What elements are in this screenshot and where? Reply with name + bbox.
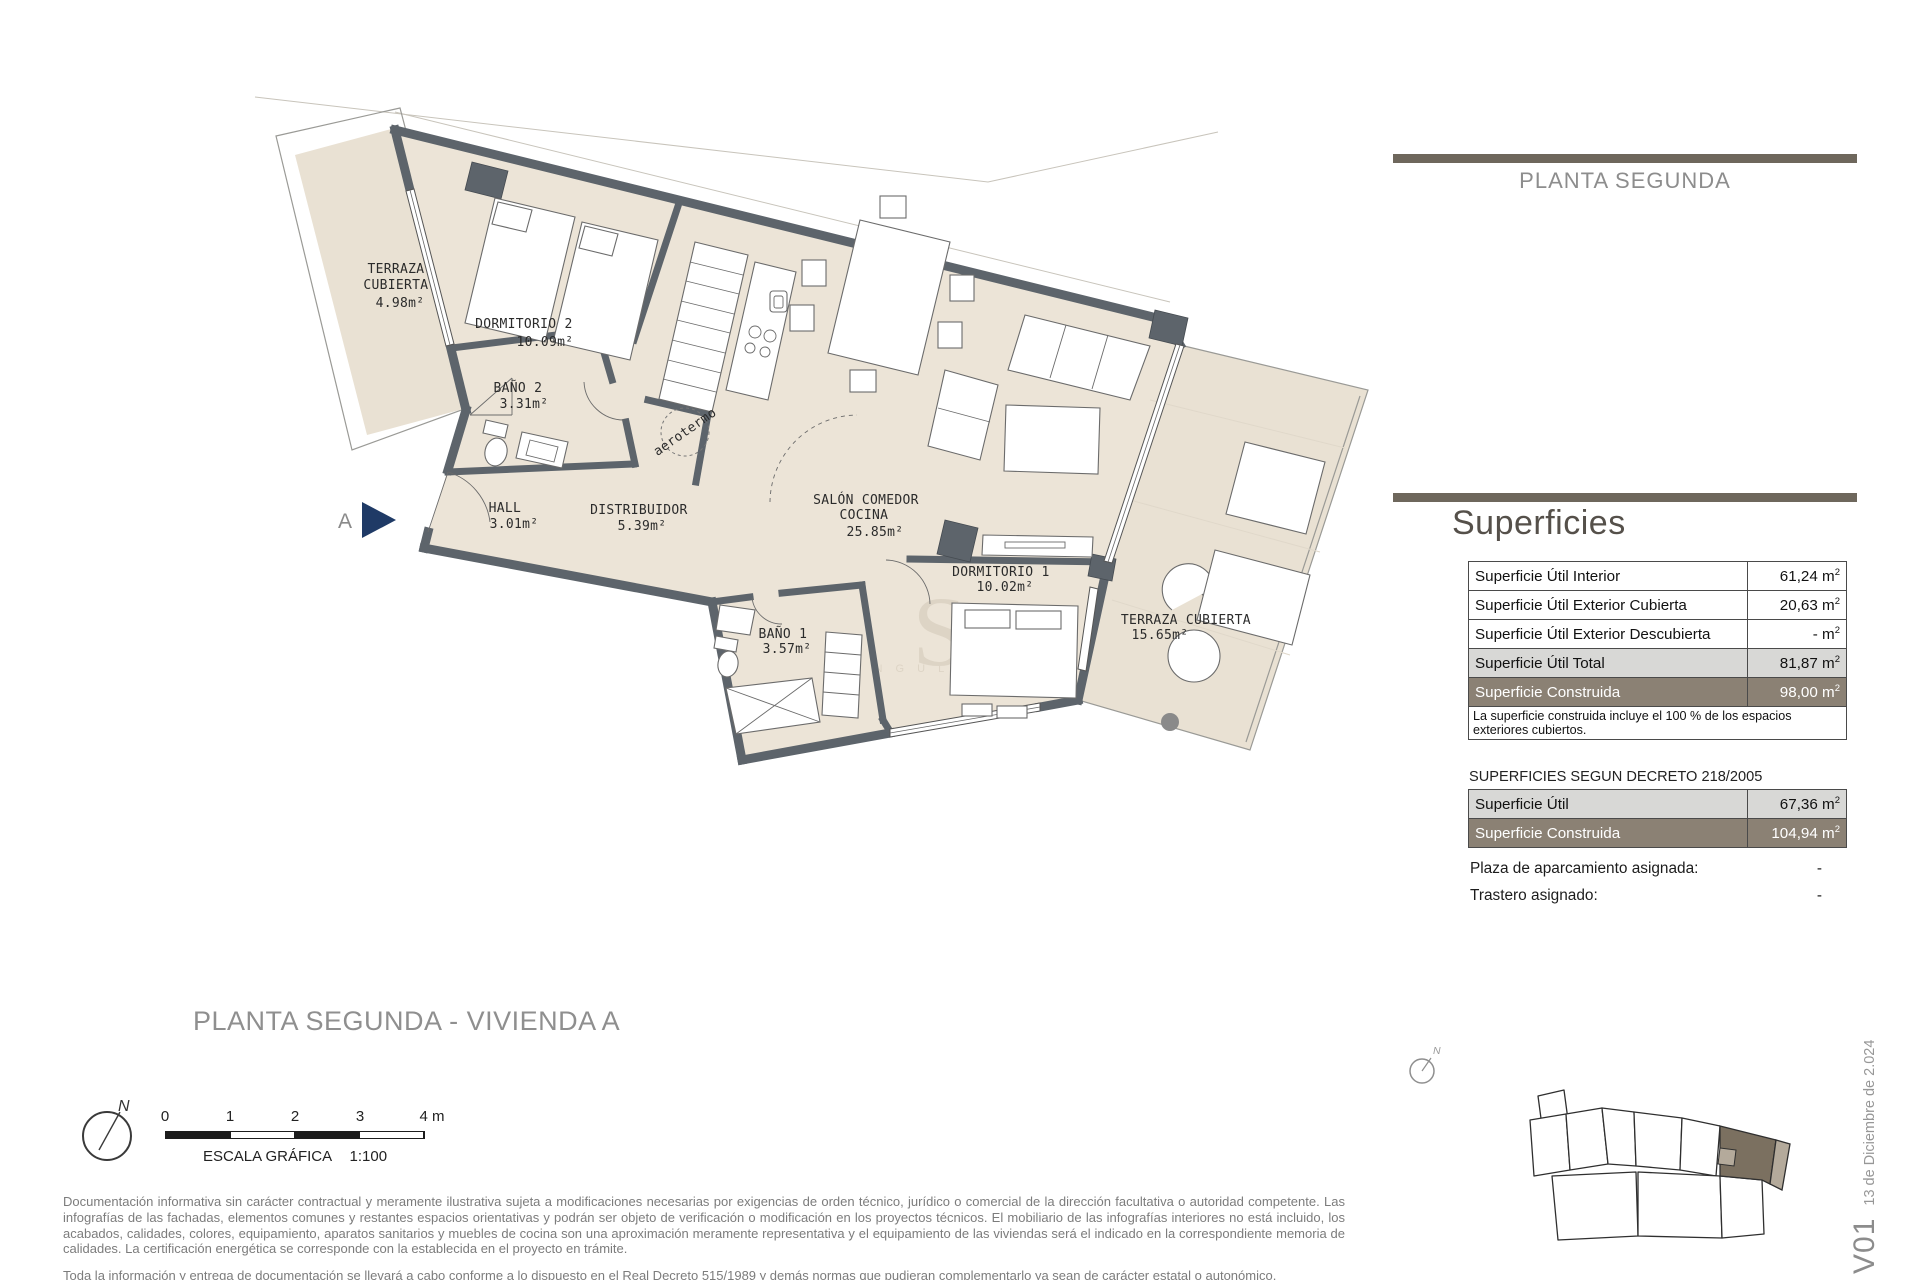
north-compass-icon: N xyxy=(74,1096,144,1166)
bath1-sink xyxy=(716,605,755,635)
room-label-bano1: BAÑO 1 3.57m² xyxy=(759,626,816,657)
svg-text:N: N xyxy=(1433,1045,1441,1057)
scale-bar xyxy=(165,1131,425,1139)
entrance-arrow xyxy=(362,502,396,538)
assignment-parking: Plaza de aparcamiento asignada: - xyxy=(1470,860,1822,878)
scale-caption: ESCALA GRÁFICA 1:100 xyxy=(165,1148,425,1165)
chair xyxy=(850,370,876,392)
superficies-title: Superficies xyxy=(1452,504,1626,543)
table-row: Superficie Construida 104,94 m2 xyxy=(1469,819,1847,848)
entrance-marker: A xyxy=(338,502,396,538)
disclaimer-paragraph-2: Toda la información y entrega de documen… xyxy=(63,1268,1345,1280)
decree-heading: SUPERFICIES SEGUN DECRETO 218/2005 xyxy=(1469,769,1762,785)
bench xyxy=(962,704,992,716)
table-row: Superficie Útil 67,36 m2 xyxy=(1469,790,1847,819)
table-note-row: La superficie construida incluye el 100 … xyxy=(1469,707,1847,740)
chair xyxy=(938,322,962,348)
note-line-2: exteriores cubiertos. xyxy=(1473,723,1842,737)
floor-heading: PLANTA SEGUNDA xyxy=(1393,168,1857,194)
version-date: 13 de Diciembre de 2.024 xyxy=(1862,1040,1878,1206)
table-row: Superficie Útil Exterior Cubierta 20,63 … xyxy=(1469,591,1847,620)
bench xyxy=(997,706,1027,718)
terrace-plant xyxy=(1161,713,1179,731)
version-stamp: V01 13 de Diciembre de 2.024 xyxy=(1848,1040,1882,1274)
brochure-page: S S I N G U L A R xyxy=(0,0,1920,1280)
site-key-plan xyxy=(1524,1088,1810,1266)
chair xyxy=(880,196,906,218)
pillow xyxy=(965,610,1010,628)
mini-north-icon: N xyxy=(1400,1040,1446,1092)
decree-table: Superficie Útil 67,36 m2 Superficie Cons… xyxy=(1468,789,1847,848)
salon-pillar xyxy=(937,520,978,562)
pillow xyxy=(1016,611,1061,629)
page-title: PLANTA SEGUNDA - VIVIENDA A xyxy=(193,1006,620,1037)
chair xyxy=(802,260,826,286)
coffee-table xyxy=(1004,405,1100,474)
version-code: V01 xyxy=(1848,1218,1882,1274)
assignment-storage: Trastero asignado: - xyxy=(1470,887,1822,905)
table-row-construida: Superficie Construida 98,00 m2 xyxy=(1469,678,1847,707)
accent-bar-superficies xyxy=(1393,493,1857,502)
accent-bar-top xyxy=(1393,154,1857,163)
table-row-total: Superficie Útil Total 81,87 m2 xyxy=(1469,649,1847,678)
entrance-letter: A xyxy=(338,510,352,533)
table-row: Superficie Útil Interior 61,24 m2 xyxy=(1469,562,1847,591)
svg-text:N: N xyxy=(118,1098,130,1115)
table-row: Superficie Útil Exterior Descubierta - m… xyxy=(1469,620,1847,649)
floor-plan: S S I N G U L A R xyxy=(250,70,1380,840)
chair xyxy=(950,275,974,301)
tv-console xyxy=(982,535,1093,557)
disclaimer-paragraph-1: Documentación informativa sin carácter c… xyxy=(63,1194,1345,1257)
kitchen-sink xyxy=(770,291,787,312)
note-line-1: La superficie construida incluye el 100 … xyxy=(1473,709,1842,723)
chair xyxy=(790,305,814,331)
surfaces-table: Superficie Útil Interior 61,24 m2 Superf… xyxy=(1468,561,1847,740)
